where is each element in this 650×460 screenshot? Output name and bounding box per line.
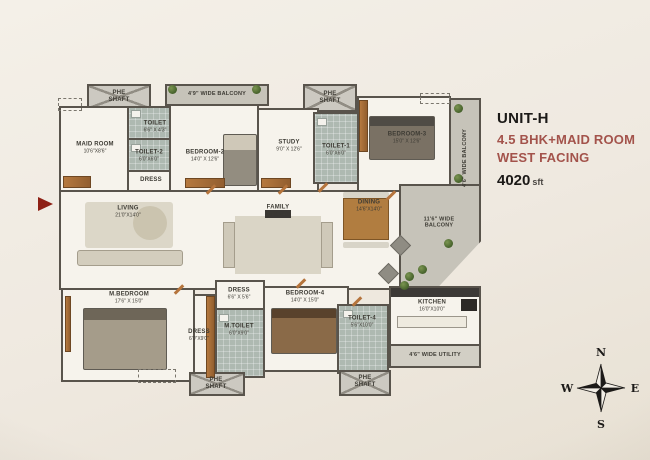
room-label-kitchen: KITCHEN16'0"X10'0" [418, 300, 446, 313]
room-label-balcony-dining: 11'6" WIDE BALCONY [418, 217, 460, 230]
ac-ledge [138, 369, 176, 383]
floorplan-page: PHE SHAFT TOILET6'6" X 4'3" MAID ROOM10'… [0, 0, 650, 460]
title-block: UNIT-H 4.5 BHK+MAID ROOM WEST FACING 402… [497, 110, 635, 189]
plant-icon [454, 104, 463, 113]
bed-bedroom4 [271, 308, 337, 354]
dining-chairs-bottom [343, 242, 389, 248]
floor-plan: PHE SHAFT TOILET6'6" X 4'3" MAID ROOM10'… [55, 82, 485, 398]
wardrobe-bedroom2 [185, 178, 225, 188]
room-label-balcony-top: 4'9" WIDE BALCONY [188, 91, 246, 97]
unit-facing-subtitle: WEST FACING [497, 150, 635, 165]
room-label-toilet-4: TOILET-45'6"X10'0" [348, 316, 376, 329]
unit-area: 4020sft [497, 172, 635, 189]
sofa-living [77, 250, 183, 266]
room-label-phe-shaft-4: PHE SHAFT [352, 375, 378, 389]
plant-icon [168, 85, 177, 94]
room-label-study: STUDY9'0" X 12'6" [276, 140, 301, 153]
room-label-utility: 4'6" WIDE UTILITY [409, 352, 461, 358]
compass-label-west: W [560, 382, 574, 395]
room-label-master-bedroom: M.BEDROOM17'6" X 15'0" [109, 292, 149, 305]
room-label-toilet-maid: TOILET6'6" X 4'3" [144, 121, 167, 134]
room-label-toilet-2: TOILET-26'0"X6'0" [135, 150, 163, 163]
rug-family [235, 216, 321, 274]
compass-label-north: N [596, 346, 606, 359]
plant-icon [405, 272, 414, 281]
area-value: 4020 [497, 172, 530, 189]
ac-ledge [420, 93, 450, 104]
wc-toilet-1 [317, 118, 327, 126]
compass-rose: N E S W [559, 340, 643, 432]
room-label-bedroom-3: BEDROOM-315'0" X 12'6" [388, 132, 426, 145]
compass-label-east: E [631, 382, 639, 395]
unit-type-subtitle: 4.5 BHK+MAID ROOM [497, 132, 635, 147]
wc-master-toilet [219, 314, 229, 322]
wardrobe-maid [63, 176, 91, 188]
room-label-bedroom-4: BEDROOM-414'0" X 15'0" [286, 291, 324, 304]
room-label-phe-shaft-3: PHE SHAFT [203, 377, 229, 391]
ac-ledge [58, 98, 82, 111]
room-label-balcony-right: 4'6" WIDE BALCONY [462, 129, 468, 187]
kitchen-fridge [461, 299, 477, 311]
room-label-toilet-1: TOILET-16'0"X6'0" [322, 144, 350, 157]
plant-icon [252, 85, 261, 94]
room-label-master-toilet: M.TOILET6'0"X9'0" [224, 324, 254, 337]
feature-wall-master [65, 296, 71, 352]
bed-master [83, 308, 167, 370]
room-label-bedroom-2: BEDROOM-214'0" X 12'6" [186, 150, 224, 163]
sofa-family-left [223, 222, 235, 268]
bed-bedroom2 [223, 134, 257, 186]
room-label-phe-shaft-2: PHE SHAFT [317, 91, 343, 105]
entrance-arrow-icon [38, 197, 53, 211]
area-unit: sft [532, 177, 543, 187]
room-label-family: FAMILY20'8"X14'0" [265, 205, 290, 218]
kitchen-island [397, 316, 467, 328]
room-label-dress-4: DRESS6'6" X 5'6" [228, 288, 251, 301]
plant-icon [418, 265, 427, 274]
wc-toilet-maid [131, 110, 141, 118]
room-label-dress-2: DRESS [140, 177, 162, 183]
wardrobe-bedroom3 [359, 100, 368, 152]
room-label-phe-shaft-1: PHE SHAFT [106, 90, 132, 104]
plant-icon [400, 281, 409, 290]
plant-icon [444, 239, 453, 248]
room-label-maid-room: MAID ROOM10'6"X8'6" [76, 142, 113, 155]
compass-label-south: S [597, 418, 605, 431]
unit-title: UNIT-H [497, 110, 635, 127]
room-label-dress-master: DRESS6'0"X9'0" [186, 329, 212, 343]
sofa-family-right [321, 222, 333, 268]
room-label-living: LIVING21'0"X14'0" [115, 206, 140, 219]
room-label-dining: DINING14'6"X14'0" [356, 200, 381, 213]
